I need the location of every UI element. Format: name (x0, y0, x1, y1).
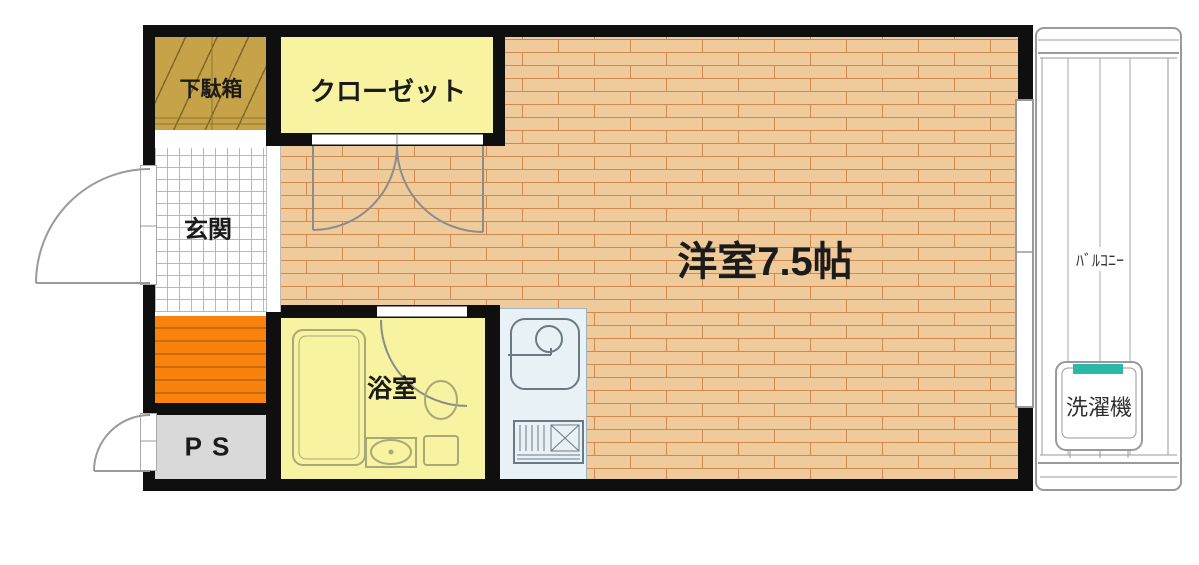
toilet (424, 381, 458, 465)
ps-door-swing (94, 415, 157, 471)
kitchen-sink (508, 319, 579, 389)
floor-plan: 下駄箱 クローゼット 玄関 洋室7.5帖 浴室 PS ﾊﾞﾙｺﾆｰ 洗濯機 (0, 0, 1199, 565)
balcony-label: ﾊﾞﾙｺﾆｰ (1074, 247, 1126, 271)
entrance-label: 玄関 (184, 210, 232, 245)
kitchen-stove (514, 421, 583, 463)
bathtub (293, 330, 365, 465)
washing-machine-label: 洗濯機 (1066, 390, 1132, 422)
western-room-label: 洋室7.5帖 (677, 229, 853, 287)
closet-double-doors (313, 134, 483, 232)
closet-label: クローゼット (310, 72, 466, 109)
balcony-window (1016, 100, 1033, 407)
bathroom-label: 浴室 (367, 369, 417, 405)
washer-teal-stripe (1073, 364, 1123, 374)
pipe-space-label: PS (185, 432, 240, 463)
shoe-cabinet-label: 下駄箱 (180, 73, 243, 103)
entrance-door-swing (36, 169, 157, 283)
bathroom-sink (366, 438, 416, 467)
